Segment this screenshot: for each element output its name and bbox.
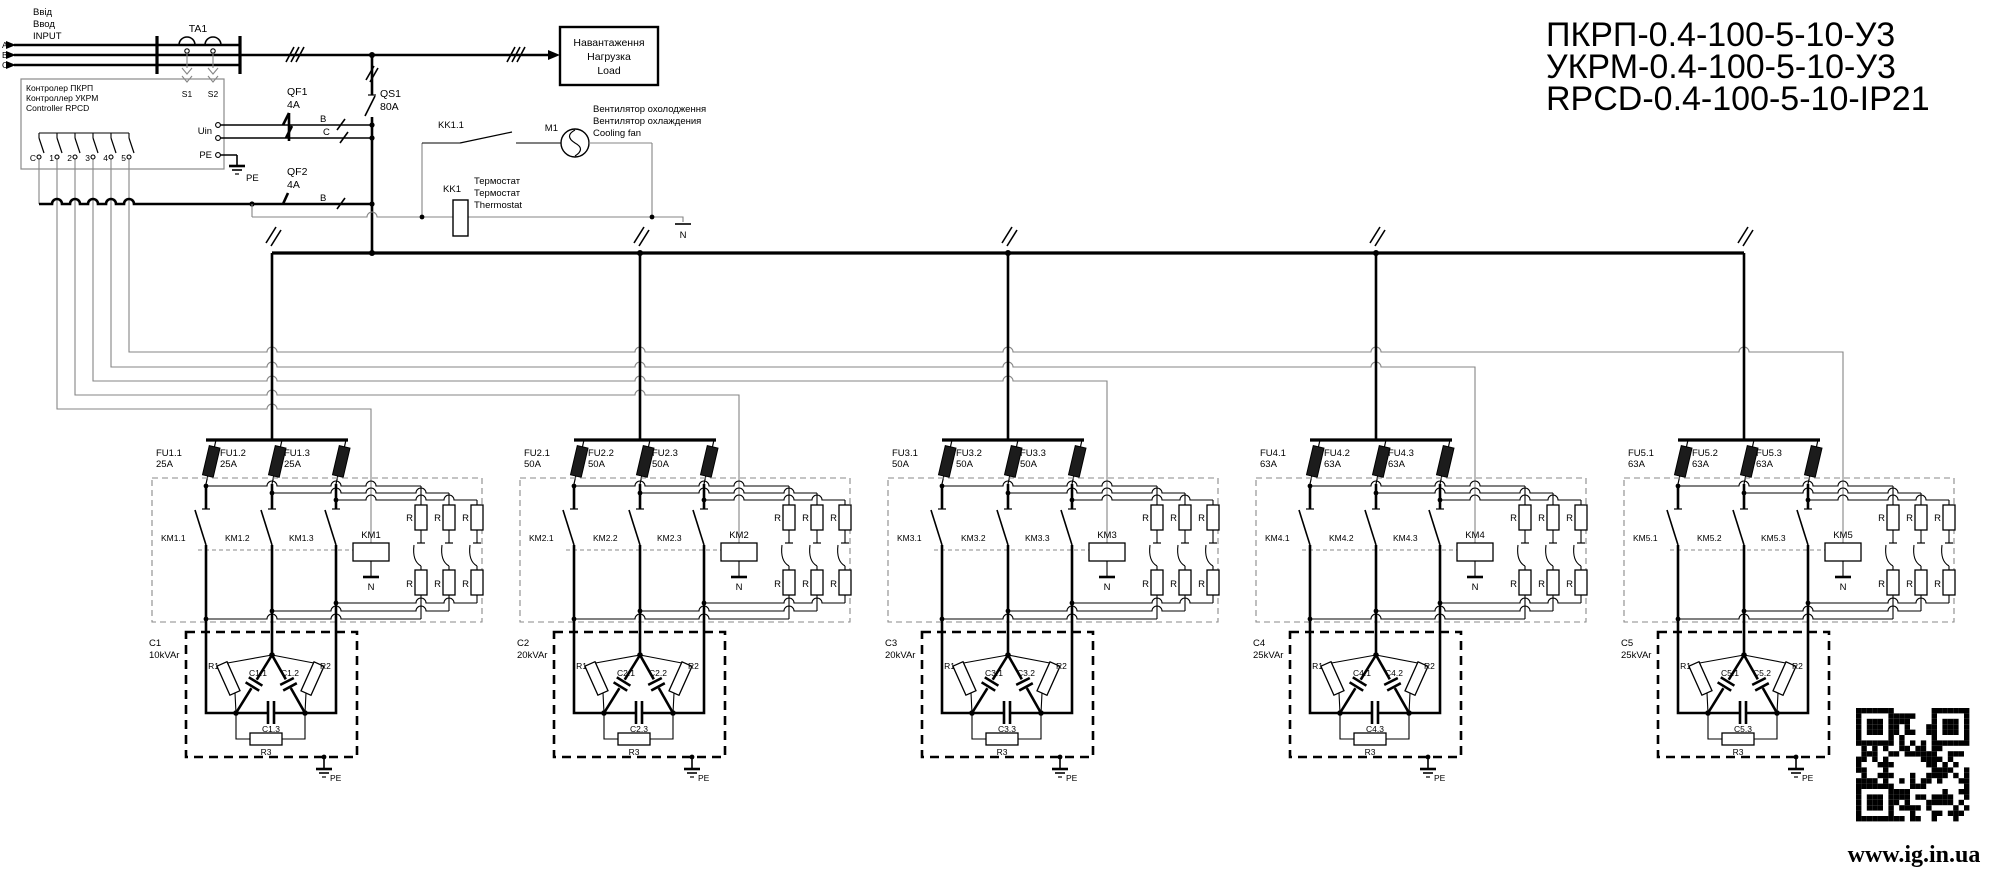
resistor-label: R bbox=[774, 513, 781, 524]
r2-label: R2 bbox=[1424, 661, 1435, 671]
r1-label: R1 bbox=[208, 661, 219, 671]
fuse-rating: 50A bbox=[956, 459, 974, 470]
discharge-r1-wire bbox=[1326, 655, 1376, 664]
discharge-r1-icon bbox=[217, 662, 240, 696]
controller-title: Controller RPCD bbox=[26, 103, 89, 113]
fuse-label: FU2.1 bbox=[524, 448, 550, 459]
qf2-rating: 4A bbox=[287, 179, 300, 191]
resistor-return-wire bbox=[704, 598, 845, 603]
resistor-label: R bbox=[1510, 513, 1517, 524]
capacitor-power: 25kVAr bbox=[1253, 650, 1283, 661]
relay-contact-icon: C bbox=[30, 133, 44, 163]
resistor-column bbox=[1546, 493, 1559, 611]
terminal-label: 4 bbox=[103, 153, 108, 163]
resistor-feed-wire bbox=[272, 488, 449, 493]
contactor-coil-icon bbox=[1457, 543, 1493, 561]
contactor-contact-icon bbox=[563, 484, 578, 545]
fuse-label: FU5.2 bbox=[1692, 448, 1718, 459]
resistor-return-wire bbox=[942, 614, 1157, 619]
resistor-label: R bbox=[1170, 579, 1177, 590]
resistor-return-wire bbox=[1440, 598, 1581, 603]
discharge-r2-wire bbox=[1008, 655, 1055, 664]
capacitor-power: 20kVAr bbox=[517, 650, 547, 661]
fuse-rating: 25A bbox=[156, 459, 174, 470]
qs1-rating: 80A bbox=[380, 101, 399, 113]
resistor-column bbox=[1942, 500, 1955, 603]
capacitor-name: C2 bbox=[517, 638, 529, 649]
resistor-feed-wire bbox=[574, 481, 789, 486]
capacitor-name: C4 bbox=[1253, 638, 1265, 649]
discharge-r3-wire bbox=[282, 713, 305, 739]
coil-label: KM2 bbox=[729, 530, 749, 541]
terminal-label: 5 bbox=[121, 153, 126, 163]
discharge-r3-wire bbox=[1340, 713, 1354, 739]
schematic-page: PE FU1.1 25A FU1.2 25A FU1.3 25A bbox=[0, 0, 2000, 876]
resistor-label: R bbox=[1198, 579, 1205, 590]
resistor-feed-wire bbox=[1376, 488, 1553, 493]
resistor-return-wire bbox=[272, 606, 449, 611]
resistor-column bbox=[414, 486, 427, 619]
fuse-label: FU2.3 bbox=[652, 448, 678, 459]
pe-label: PE bbox=[1066, 773, 1078, 783]
section-3: FU3.1 50A FU3.2 50A FU3.3 50A KM3.1 KM3.… bbox=[885, 227, 1219, 783]
discharge-r2-wire bbox=[673, 693, 674, 713]
load-label: Load bbox=[597, 65, 621, 77]
r3-label: R3 bbox=[997, 747, 1008, 757]
contact-label: KM5.2 bbox=[1697, 533, 1722, 543]
resistor-return-wire bbox=[1072, 598, 1213, 603]
r2-label: R2 bbox=[320, 661, 331, 671]
resistor-column bbox=[1886, 486, 1899, 619]
contact-label: KM1.3 bbox=[289, 533, 314, 543]
resistor-label: R bbox=[462, 579, 469, 590]
qf1-breaker: QF1 4A B C bbox=[220, 86, 372, 143]
fuse-rating: 63A bbox=[1756, 459, 1774, 470]
resistor-label: R bbox=[1878, 579, 1885, 590]
resistor-return-wire bbox=[574, 614, 789, 619]
fuse-rating: 50A bbox=[892, 459, 910, 470]
discharge-r1-wire bbox=[222, 655, 272, 664]
neutral-label: N bbox=[1104, 582, 1111, 593]
model-title: RPCD-0.4-100-5-10-IP21 bbox=[1546, 80, 1930, 118]
discharge-r2-wire bbox=[272, 655, 319, 664]
controller-title: Контроллер УКРМ bbox=[26, 93, 98, 103]
r3-label: R3 bbox=[629, 747, 640, 757]
resistor-return-wire bbox=[1744, 606, 1921, 611]
fuse-icon bbox=[701, 440, 719, 484]
ground-icon bbox=[229, 155, 245, 174]
resistor-feed-wire bbox=[640, 488, 817, 493]
kk11-label: KK1.1 bbox=[438, 120, 464, 131]
delta-capacitor-icon bbox=[233, 652, 308, 724]
resistor-column bbox=[1150, 486, 1163, 619]
resistor-column bbox=[1178, 493, 1191, 611]
cap-c2-label: C2.2 bbox=[649, 668, 667, 678]
resistor-return-wire bbox=[1008, 606, 1185, 611]
fuse-label: FU4.1 bbox=[1260, 448, 1286, 459]
resistor-label: R bbox=[1566, 579, 1573, 590]
r1-label: R1 bbox=[1680, 661, 1691, 671]
resistor-return-wire bbox=[1808, 598, 1949, 603]
discharge-r3-icon bbox=[1722, 733, 1754, 745]
resistor-label: R bbox=[406, 579, 413, 590]
discharge-r2-wire bbox=[1409, 693, 1410, 713]
resistor-label: R bbox=[1934, 513, 1941, 524]
resistor-column bbox=[1206, 500, 1219, 603]
section-4: FU4.1 63A FU4.2 63A FU4.3 63A KM4.1 KM4.… bbox=[1253, 227, 1587, 783]
delta-capacitor-icon bbox=[601, 652, 676, 724]
fan-label: Вентилятор охлаждения bbox=[593, 116, 701, 127]
contactor-coil-icon bbox=[1089, 543, 1125, 561]
pole-b-label: B bbox=[320, 193, 326, 204]
contactor-coil-icon bbox=[1825, 543, 1861, 561]
m1-label: M1 bbox=[545, 123, 558, 134]
fuse-rating: 25A bbox=[284, 459, 302, 470]
neutral-label: N bbox=[680, 230, 687, 241]
fuse-icon bbox=[1307, 440, 1325, 484]
fuse-icon bbox=[571, 440, 589, 484]
schematic-drawing: PE FU1.1 25A FU1.2 25A FU1.3 25A bbox=[0, 0, 2000, 876]
fan-label: Вентилятор охолодження bbox=[593, 104, 706, 115]
terminal-label: 2 bbox=[67, 153, 72, 163]
relay-contact-icon: 4 bbox=[103, 133, 116, 163]
discharge-r1-icon bbox=[1689, 662, 1712, 696]
input-area: Ввід Ввод INPUT A B C bbox=[2, 7, 240, 70]
terminal-label: C bbox=[30, 153, 36, 163]
resistor-feed-wire bbox=[1440, 495, 1581, 500]
discharge-r1-icon bbox=[953, 662, 976, 696]
resistor-feed-wire bbox=[1678, 481, 1893, 486]
resistor-label: R bbox=[434, 513, 441, 524]
neutral-label: N bbox=[736, 582, 743, 593]
r1-label: R1 bbox=[944, 661, 955, 671]
discharge-r3-wire bbox=[1386, 713, 1409, 739]
discharge-r3-icon bbox=[618, 733, 650, 745]
load-label: Навантаження bbox=[573, 37, 644, 49]
fuse-rating: 63A bbox=[1388, 459, 1406, 470]
pole-b-label: B bbox=[320, 114, 326, 125]
capacitor-name: C1 bbox=[149, 638, 161, 649]
contactor-contact-icon bbox=[195, 484, 210, 545]
cap-c1-label: C2.1 bbox=[617, 668, 635, 678]
resistor-label: R bbox=[1510, 579, 1517, 590]
qs1-label: QS1 bbox=[380, 88, 401, 100]
controller-pe-label: PE bbox=[199, 150, 212, 161]
kk1-label: KK1 bbox=[443, 184, 461, 195]
fuse-label: FU4.3 bbox=[1388, 448, 1414, 459]
pe-label: PE bbox=[246, 173, 259, 184]
fuse-icon bbox=[939, 440, 957, 484]
fuse-label: FU1.1 bbox=[156, 448, 182, 459]
pe-label: PE bbox=[330, 773, 342, 783]
fuse-icon bbox=[1437, 440, 1455, 484]
contact-label: KM2.3 bbox=[657, 533, 682, 543]
current-transformer: TA1 S1 S2 bbox=[157, 23, 240, 99]
discharge-r3-icon bbox=[250, 733, 282, 745]
discharge-r3-wire bbox=[1708, 713, 1722, 739]
load-label: Нагрузка bbox=[587, 51, 631, 63]
resistor-feed-wire bbox=[1072, 495, 1213, 500]
section-5: FU5.1 63A FU5.2 63A FU5.3 63A KM5.1 KM5.… bbox=[1621, 227, 1955, 783]
resistor-return-wire bbox=[1376, 606, 1553, 611]
r2-label: R2 bbox=[688, 661, 699, 671]
main-line-to-load: Навантаження Нагрузка Load bbox=[240, 27, 658, 85]
capacitor-power: 20kVAr bbox=[885, 650, 915, 661]
discharge-r3-wire bbox=[650, 713, 673, 739]
neutral-label: N bbox=[1840, 582, 1847, 593]
resistor-feed-wire bbox=[942, 481, 1157, 486]
controller-title: Контролер ПКРП bbox=[26, 83, 93, 93]
contact-label: KM4.1 bbox=[1265, 533, 1290, 543]
resistor-return-wire bbox=[1310, 614, 1525, 619]
discharge-r2-wire bbox=[1744, 655, 1791, 664]
resistor-label: R bbox=[830, 579, 837, 590]
fuse-label: FU3.3 bbox=[1020, 448, 1046, 459]
fuse-icon bbox=[1675, 440, 1693, 484]
thermostat-icon bbox=[453, 200, 468, 236]
contactor-contact-icon bbox=[931, 484, 946, 545]
fuse-icon bbox=[1805, 440, 1823, 484]
contact-label: KM3.2 bbox=[961, 533, 986, 543]
fuse-rating: 50A bbox=[652, 459, 670, 470]
s2-label: S2 bbox=[208, 89, 219, 99]
resistor-label: R bbox=[1170, 513, 1177, 524]
kk11-blade bbox=[460, 132, 512, 143]
resistor-label: R bbox=[1142, 579, 1149, 590]
coil-label: KM1 bbox=[361, 530, 381, 541]
fuse-icon bbox=[203, 440, 221, 484]
qf1-rating: 4A bbox=[287, 99, 300, 111]
resistor-label: R bbox=[406, 513, 413, 524]
resistor-column bbox=[782, 486, 795, 619]
resistor-label: R bbox=[1906, 513, 1913, 524]
resistor-label: R bbox=[1142, 513, 1149, 524]
uin-label: Uin bbox=[198, 126, 212, 137]
capacitor-power: 10kVAr bbox=[149, 650, 179, 661]
resistor-column bbox=[442, 493, 455, 611]
title-block: ПКРП-0.4-100-5-10-У3 УКРМ-0.4-100-5-10-У… bbox=[1546, 16, 1930, 118]
qr-code bbox=[1856, 708, 1969, 821]
fuse-label: FU5.1 bbox=[1628, 448, 1654, 459]
capacitor-sections: FU1.1 25A FU1.2 25A FU1.3 25A KM1.1 KM1.… bbox=[149, 227, 1955, 783]
resistor-column bbox=[838, 500, 851, 603]
contactor-coil-icon bbox=[721, 543, 757, 561]
discharge-r2-wire bbox=[305, 693, 306, 713]
pe-label: PE bbox=[1434, 773, 1446, 783]
pole-c-label: C bbox=[323, 127, 330, 138]
discharge-r1-wire bbox=[958, 655, 1008, 664]
relay-contact-icon: 3 bbox=[85, 133, 98, 163]
discharge-r2-wire bbox=[1376, 655, 1423, 664]
resistor-column bbox=[810, 493, 823, 611]
r3-label: R3 bbox=[1733, 747, 1744, 757]
fuse-rating: 50A bbox=[1020, 459, 1038, 470]
resistor-feed-wire bbox=[1808, 495, 1949, 500]
fuse-label: FU1.2 bbox=[220, 448, 246, 459]
fuse-label: FU3.2 bbox=[956, 448, 982, 459]
load-arrow-icon bbox=[548, 50, 560, 60]
discharge-r3-wire bbox=[1018, 713, 1041, 739]
fuse-rating: 50A bbox=[524, 459, 542, 470]
resistor-feed-wire bbox=[336, 495, 477, 500]
fuse-label: FU1.3 bbox=[284, 448, 310, 459]
discharge-r3-icon bbox=[986, 733, 1018, 745]
cap-c1-label: C1.1 bbox=[249, 668, 267, 678]
resistor-label: R bbox=[774, 579, 781, 590]
distribution-bus bbox=[272, 250, 1744, 256]
coil-label: KM5 bbox=[1833, 530, 1853, 541]
qf1-label: QF1 bbox=[287, 86, 308, 98]
resistor-label: R bbox=[1934, 579, 1941, 590]
cap-c2-label: C4.2 bbox=[1385, 668, 1403, 678]
resistor-column bbox=[1518, 486, 1531, 619]
fuse-rating: 63A bbox=[1628, 459, 1646, 470]
discharge-r3-icon bbox=[1354, 733, 1386, 745]
resistor-return-wire bbox=[336, 598, 477, 603]
contact-label: KM1.1 bbox=[161, 533, 186, 543]
delta-capacitor-icon bbox=[1337, 652, 1412, 724]
s1-label: S1 bbox=[182, 89, 193, 99]
discharge-r1-wire bbox=[590, 655, 640, 664]
input-label: Ввод bbox=[33, 19, 55, 30]
resistor-label: R bbox=[802, 513, 809, 524]
discharge-r3-wire bbox=[236, 713, 250, 739]
contactor-contact-icon bbox=[1667, 484, 1682, 545]
delta-capacitor-icon bbox=[1705, 652, 1780, 724]
section-1: FU1.1 25A FU1.2 25A FU1.3 25A KM1.1 KM1.… bbox=[149, 227, 483, 783]
r3-label: R3 bbox=[1365, 747, 1376, 757]
discharge-r3-wire bbox=[972, 713, 986, 739]
capacitor-name: C3 bbox=[885, 638, 897, 649]
neutral-label: N bbox=[368, 582, 375, 593]
terminal-label: 3 bbox=[85, 153, 90, 163]
resistor-feed-wire bbox=[704, 495, 845, 500]
fuse-rating: 63A bbox=[1324, 459, 1342, 470]
qs1-disconnector: QS1 80A bbox=[365, 55, 401, 253]
resistor-label: R bbox=[434, 579, 441, 590]
resistor-label: R bbox=[1906, 579, 1913, 590]
r1-label: R1 bbox=[1312, 661, 1323, 671]
contactor-contact-icon bbox=[1299, 484, 1314, 545]
resistor-label: R bbox=[1878, 513, 1885, 524]
fuse-icon bbox=[1069, 440, 1087, 484]
neutral-label: N bbox=[1472, 582, 1479, 593]
discharge-r2-wire bbox=[640, 655, 687, 664]
r3-label: R3 bbox=[261, 747, 272, 757]
delta-capacitor-icon bbox=[969, 652, 1044, 724]
discharge-r1-wire bbox=[235, 693, 236, 713]
section-2: FU2.1 50A FU2.2 50A FU2.3 50A KM2.1 KM2.… bbox=[517, 227, 851, 783]
contact-label: KM2.1 bbox=[529, 533, 554, 543]
coil-label: KM4 bbox=[1465, 530, 1485, 541]
resistor-feed-wire bbox=[1744, 488, 1921, 493]
resistor-label: R bbox=[1198, 513, 1205, 524]
r1-label: R1 bbox=[576, 661, 587, 671]
cap-c2-label: C3.2 bbox=[1017, 668, 1035, 678]
fuse-rating: 50A bbox=[588, 459, 606, 470]
resistor-label: R bbox=[462, 513, 469, 524]
discharge-r3-wire bbox=[604, 713, 618, 739]
resistor-label: R bbox=[1538, 579, 1545, 590]
fuse-icon bbox=[333, 440, 351, 484]
coil-label: KM3 bbox=[1097, 530, 1117, 541]
discharge-r1-wire bbox=[1339, 693, 1340, 713]
fuse-label: FU3.1 bbox=[892, 448, 918, 459]
contact-label: KM4.3 bbox=[1393, 533, 1418, 543]
website-url: www.ig.in.ua bbox=[1848, 842, 1981, 868]
fuse-label: FU5.3 bbox=[1756, 448, 1782, 459]
cap-c2-label: C1.2 bbox=[281, 668, 299, 678]
resistor-feed-wire bbox=[1310, 481, 1525, 486]
pe-label: PE bbox=[698, 773, 710, 783]
cap-c1-label: C5.1 bbox=[1721, 668, 1739, 678]
relay-contacts: C12345 bbox=[30, 133, 134, 163]
resistor-column bbox=[1914, 493, 1927, 611]
resistor-feed-wire bbox=[206, 481, 421, 486]
discharge-r3-wire bbox=[1754, 713, 1777, 739]
relay-contact-icon: 2 bbox=[67, 133, 80, 163]
input-label: INPUT bbox=[33, 31, 62, 42]
resistor-return-wire bbox=[206, 614, 421, 619]
cap-c2-label: C5.2 bbox=[1753, 668, 1771, 678]
r2-label: R2 bbox=[1056, 661, 1067, 671]
resistor-return-wire bbox=[1678, 614, 1893, 619]
discharge-r1-icon bbox=[585, 662, 608, 696]
fuse-label: FU4.2 bbox=[1324, 448, 1350, 459]
contact-label: KM3.1 bbox=[897, 533, 922, 543]
ta1-label: TA1 bbox=[189, 23, 208, 35]
fuse-rating: 63A bbox=[1692, 459, 1710, 470]
qf2-label: QF2 bbox=[287, 166, 308, 178]
resistor-column bbox=[1574, 500, 1587, 603]
qf2-breaker: QF2 4A B bbox=[249, 166, 345, 209]
fan-label: Cooling fan bbox=[593, 128, 641, 139]
resistor-label: R bbox=[802, 579, 809, 590]
discharge-r1-wire bbox=[1694, 655, 1744, 664]
contact-label: KM2.2 bbox=[593, 533, 618, 543]
discharge-r1-icon bbox=[1321, 662, 1344, 696]
contact-label: KM1.2 bbox=[225, 533, 250, 543]
discharge-r1-wire bbox=[603, 693, 604, 713]
cap-c1-label: C4.1 bbox=[1353, 668, 1371, 678]
contact-label: KM5.1 bbox=[1633, 533, 1658, 543]
capacitor-name: C5 bbox=[1621, 638, 1633, 649]
resistor-label: R bbox=[1566, 513, 1573, 524]
capacitor-power: 25kVAr bbox=[1621, 650, 1651, 661]
fuse-label: FU2.2 bbox=[588, 448, 614, 459]
discharge-r2-wire bbox=[1041, 693, 1042, 713]
discharge-r2-wire bbox=[1777, 693, 1778, 713]
r2-label: R2 bbox=[1792, 661, 1803, 671]
contact-label: KM4.2 bbox=[1329, 533, 1354, 543]
resistor-column bbox=[470, 500, 483, 603]
thermostat-label: Термостат bbox=[474, 176, 521, 187]
contact-label: KM3.3 bbox=[1025, 533, 1050, 543]
fuse-rating: 63A bbox=[1260, 459, 1278, 470]
resistor-label: R bbox=[830, 513, 837, 524]
input-label: Ввід bbox=[33, 7, 52, 18]
contact-label: KM5.3 bbox=[1761, 533, 1786, 543]
pe-label: PE bbox=[1802, 773, 1814, 783]
thermostat-label: Термостат bbox=[474, 188, 521, 199]
contactor-coil-icon bbox=[353, 543, 389, 561]
cap-c1-label: C3.1 bbox=[985, 668, 1003, 678]
fuse-rating: 25A bbox=[220, 459, 238, 470]
discharge-r1-wire bbox=[1707, 693, 1708, 713]
terminal-label: 1 bbox=[49, 153, 54, 163]
relay-contact-icon: 1 bbox=[49, 133, 62, 163]
resistor-feed-wire bbox=[1008, 488, 1185, 493]
